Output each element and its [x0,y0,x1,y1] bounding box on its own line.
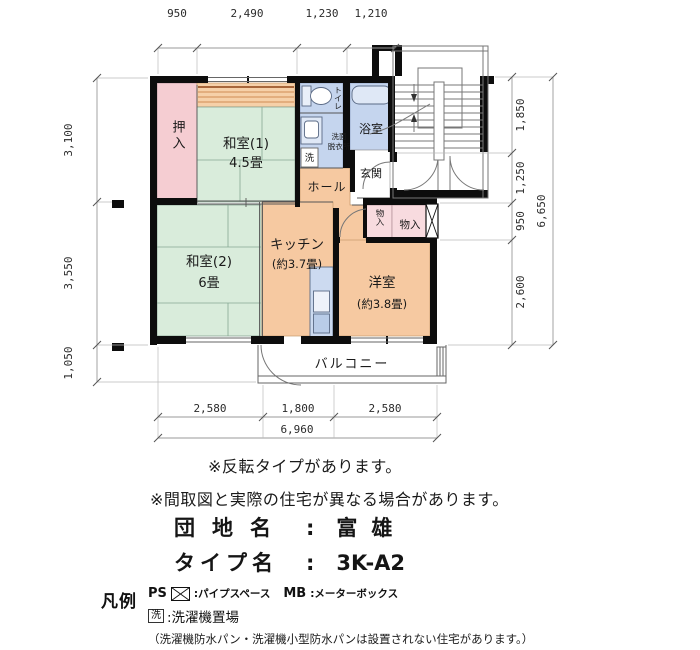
estate-name-label: 団地名 [174,512,306,542]
legend-title: 凡例 [101,587,137,612]
toilet-bowl [311,88,332,105]
label-genkan: 玄関 [360,166,382,180]
legend-row-ps-mb: PS :パイプスペース MB :メーターボックス [148,586,533,601]
dim-right-2: 1,250 [514,161,527,194]
label-youshitsu: 洋室 [369,274,396,291]
estate-name-row: 団地名 : 富雄 [174,512,406,542]
dim-bottom-3: 2,580 [368,402,401,415]
room-washitsu2 [157,205,261,336]
floorplan-page: 950 2,490 1,230 1,210 3,100 3,550 1,050 … [0,0,700,650]
dim-top-1: 950 [167,7,187,20]
label-laundry: 洗 [305,152,315,164]
dim-right-total: 6,650 [535,194,548,227]
estate-name-value: 富雄 [336,512,406,542]
label-bath: 浴室 [359,121,383,136]
balcony-door-arc [261,345,301,385]
dim-bottom-2: 1,800 [281,402,314,415]
label-senmen-1: 洗面 [332,131,347,141]
ps-hatch-box [426,204,438,238]
type-name-colon: : [306,551,314,575]
dim-top-2: 2,490 [230,7,263,20]
label-youshitsu-size: (約3.8畳) [357,297,407,311]
label-storage1: 物入 [374,208,384,226]
toilet-tank [302,86,311,106]
legend-mb-desc: :メーターボックス [310,586,398,601]
label-oshiire: 押入 [170,120,186,152]
type-name-row: タイプ名 : 3K-A2 [174,547,405,577]
type-name-value: 3K-A2 [336,551,405,575]
note-plan-difference: ※間取図と実際の住宅が異なる場合があります。 [150,486,509,510]
dim-top-3: 1,230 [305,7,338,20]
note-reverse-type: ※反転タイプがあります。 [208,453,402,477]
legend-laundry-desc: :洗濯機置場 [167,606,239,626]
legend-row-laundry: 洗 :洗濯機置場 [148,606,533,626]
laundry-box-icon: 洗 [148,609,164,623]
floor-plan: 950 2,490 1,230 1,210 3,100 3,550 1,050 … [0,0,700,450]
label-senmen-2: 脱衣所 [328,141,351,151]
label-washitsu2: 和室(2) [186,253,232,270]
dim-bottom-total: 6,960 [280,423,313,436]
ps-box-icon [171,587,190,601]
stair-arrowheads [411,94,417,122]
dim-right-1: 1,850 [514,98,527,131]
landing-door-arc-left [404,156,438,190]
landing-door-arc-right [450,156,484,190]
type-name-label: タイプ名 [174,547,306,577]
dim-right-4: 2,600 [514,275,527,308]
room-washitsu1 [197,107,295,202]
label-balcony: バルコニー [315,357,390,372]
label-kitchen: キッチン [270,237,324,253]
legend-ps-desc: :パイプスペース [194,586,270,601]
label-toilet: トイレ [334,86,343,110]
legend-waterproof-note: （洗濯機防水パン・洗濯機小型防水パンは設置されない住宅があります。） [148,631,533,647]
dim-top-4: 1,210 [354,7,387,20]
estate-name-colon: : [306,516,314,540]
label-washitsu2-size: 6畳 [198,276,219,291]
label-washitsu1-size: 4.5畳 [229,156,263,171]
legend-ps-label: PS [148,586,167,601]
dim-left-1: 3,100 [62,123,75,156]
dim-right-3: 950 [514,211,527,231]
dim-bottom-1: 2,580 [193,402,226,415]
label-kitchen-size: (約3.7畳) [272,257,322,271]
legend: 凡例 PS :パイプスペース MB :メーターボックス 洗 :洗濯機置場 （洗濯… [101,586,533,647]
dim-left-2: 3,550 [62,256,75,289]
label-washitsu1: 和室(1) [223,135,269,152]
bathtub [352,86,391,104]
dim-left-3: 1,050 [62,346,75,379]
legend-mb-label: MB [283,586,306,601]
label-hall: ホール [307,180,346,194]
label-storage2: 物入 [400,218,421,231]
